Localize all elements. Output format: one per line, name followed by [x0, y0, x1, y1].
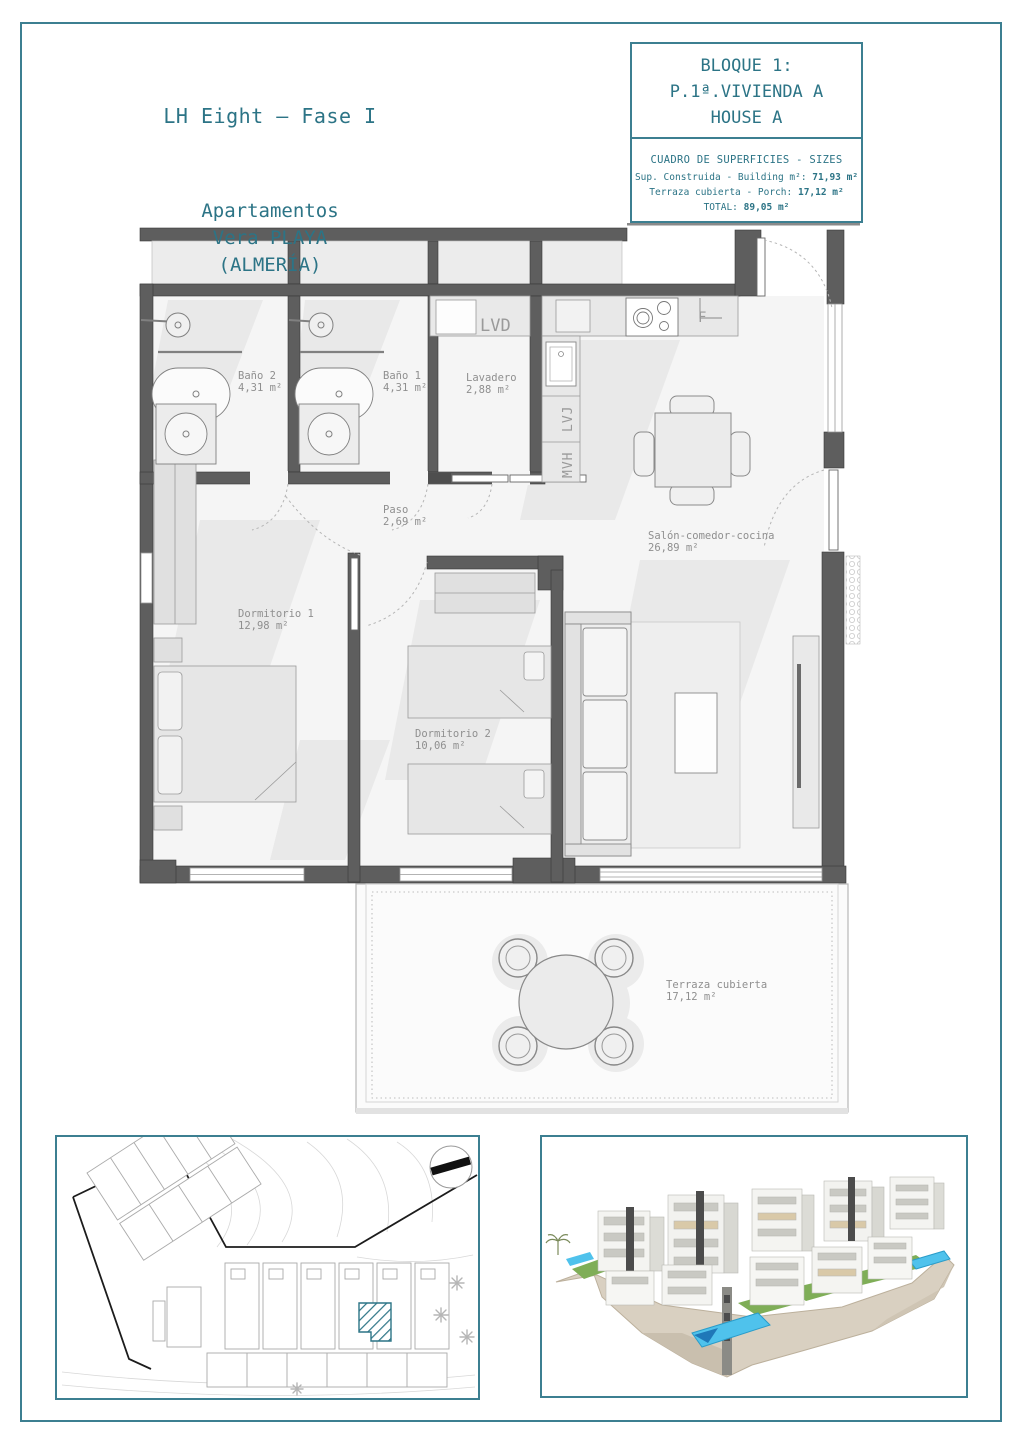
- block-line: BLOQUE 1:: [632, 53, 861, 79]
- location-line-3: (ALMERÍA): [140, 252, 400, 279]
- sizes-row: TOTAL: 89,05 m²: [632, 200, 861, 215]
- location-line-2: Vera PLAYA: [140, 225, 400, 252]
- title-block: BLOQUE 1: P.1ª.VIVIENDA A HOUSE A CUADRO…: [630, 42, 863, 223]
- sizes-row: Terraza cubierta - Porch: 17,12 m²: [632, 185, 861, 200]
- appliance-label-lvj: LVJ: [561, 406, 576, 432]
- render-palm: [546, 1235, 570, 1255]
- coffee-table: [675, 693, 717, 773]
- sofa: [565, 612, 631, 856]
- site-plan-box: [55, 1135, 480, 1400]
- render-drawing: [542, 1137, 966, 1396]
- room-label-salon: Salón-comedor-cocina26,89 m²: [648, 530, 774, 554]
- project-location: Apartamentos Vera PLAYA (ALMERÍA): [140, 198, 400, 279]
- units-left: [87, 1137, 306, 1260]
- room-label-bano1: Baño 14,31 m²: [383, 370, 427, 394]
- title-block-heading: BLOQUE 1: P.1ª.VIVIENDA A HOUSE A: [632, 44, 861, 139]
- room-label-paso: Paso2,69 m²: [383, 504, 427, 528]
- terrace-table: [519, 955, 613, 1049]
- project-title: LH Eight – Fase I: [140, 104, 400, 128]
- units-row: [153, 1263, 449, 1387]
- site-plan-drawing: [57, 1137, 478, 1398]
- sizes-table: CUADRO DE SUPERFICIES - SIZES Sup. Const…: [632, 139, 861, 215]
- room-label-dormitorio1: Dormitorio 112,98 m²: [238, 608, 314, 632]
- north-indicator: [430, 1146, 472, 1188]
- room-label-bano2: Baño 24,31 m²: [238, 370, 282, 394]
- block-line: HOUSE A: [632, 105, 861, 131]
- sizes-title: CUADRO DE SUPERFICIES - SIZES: [632, 153, 861, 168]
- sizes-row: Sup. Construida - Building m²: 71,93 m²: [632, 170, 861, 185]
- appliance-label-mvh: MVH: [561, 452, 576, 478]
- room-label-terraza: Terraza cubierta17,12 m²: [666, 979, 767, 1003]
- appliance-label-f: F: [698, 310, 706, 326]
- room-label-dormitorio2: Dormitorio 210,06 m²: [415, 728, 491, 752]
- block-line: P.1ª.VIVIENDA A: [632, 79, 861, 105]
- buildings: [598, 1177, 944, 1305]
- plan-sheet: LH Eight – Fase I Apartamentos Vera PLAY…: [0, 0, 1024, 1448]
- location-line-1: Apartamentos: [140, 198, 400, 225]
- tv-cabinet: [793, 636, 819, 828]
- room-label-lavadero: Lavadero2,88 m²: [466, 372, 517, 396]
- render-image-box: [540, 1135, 968, 1398]
- appliance-label-lvd: LVD: [480, 316, 511, 336]
